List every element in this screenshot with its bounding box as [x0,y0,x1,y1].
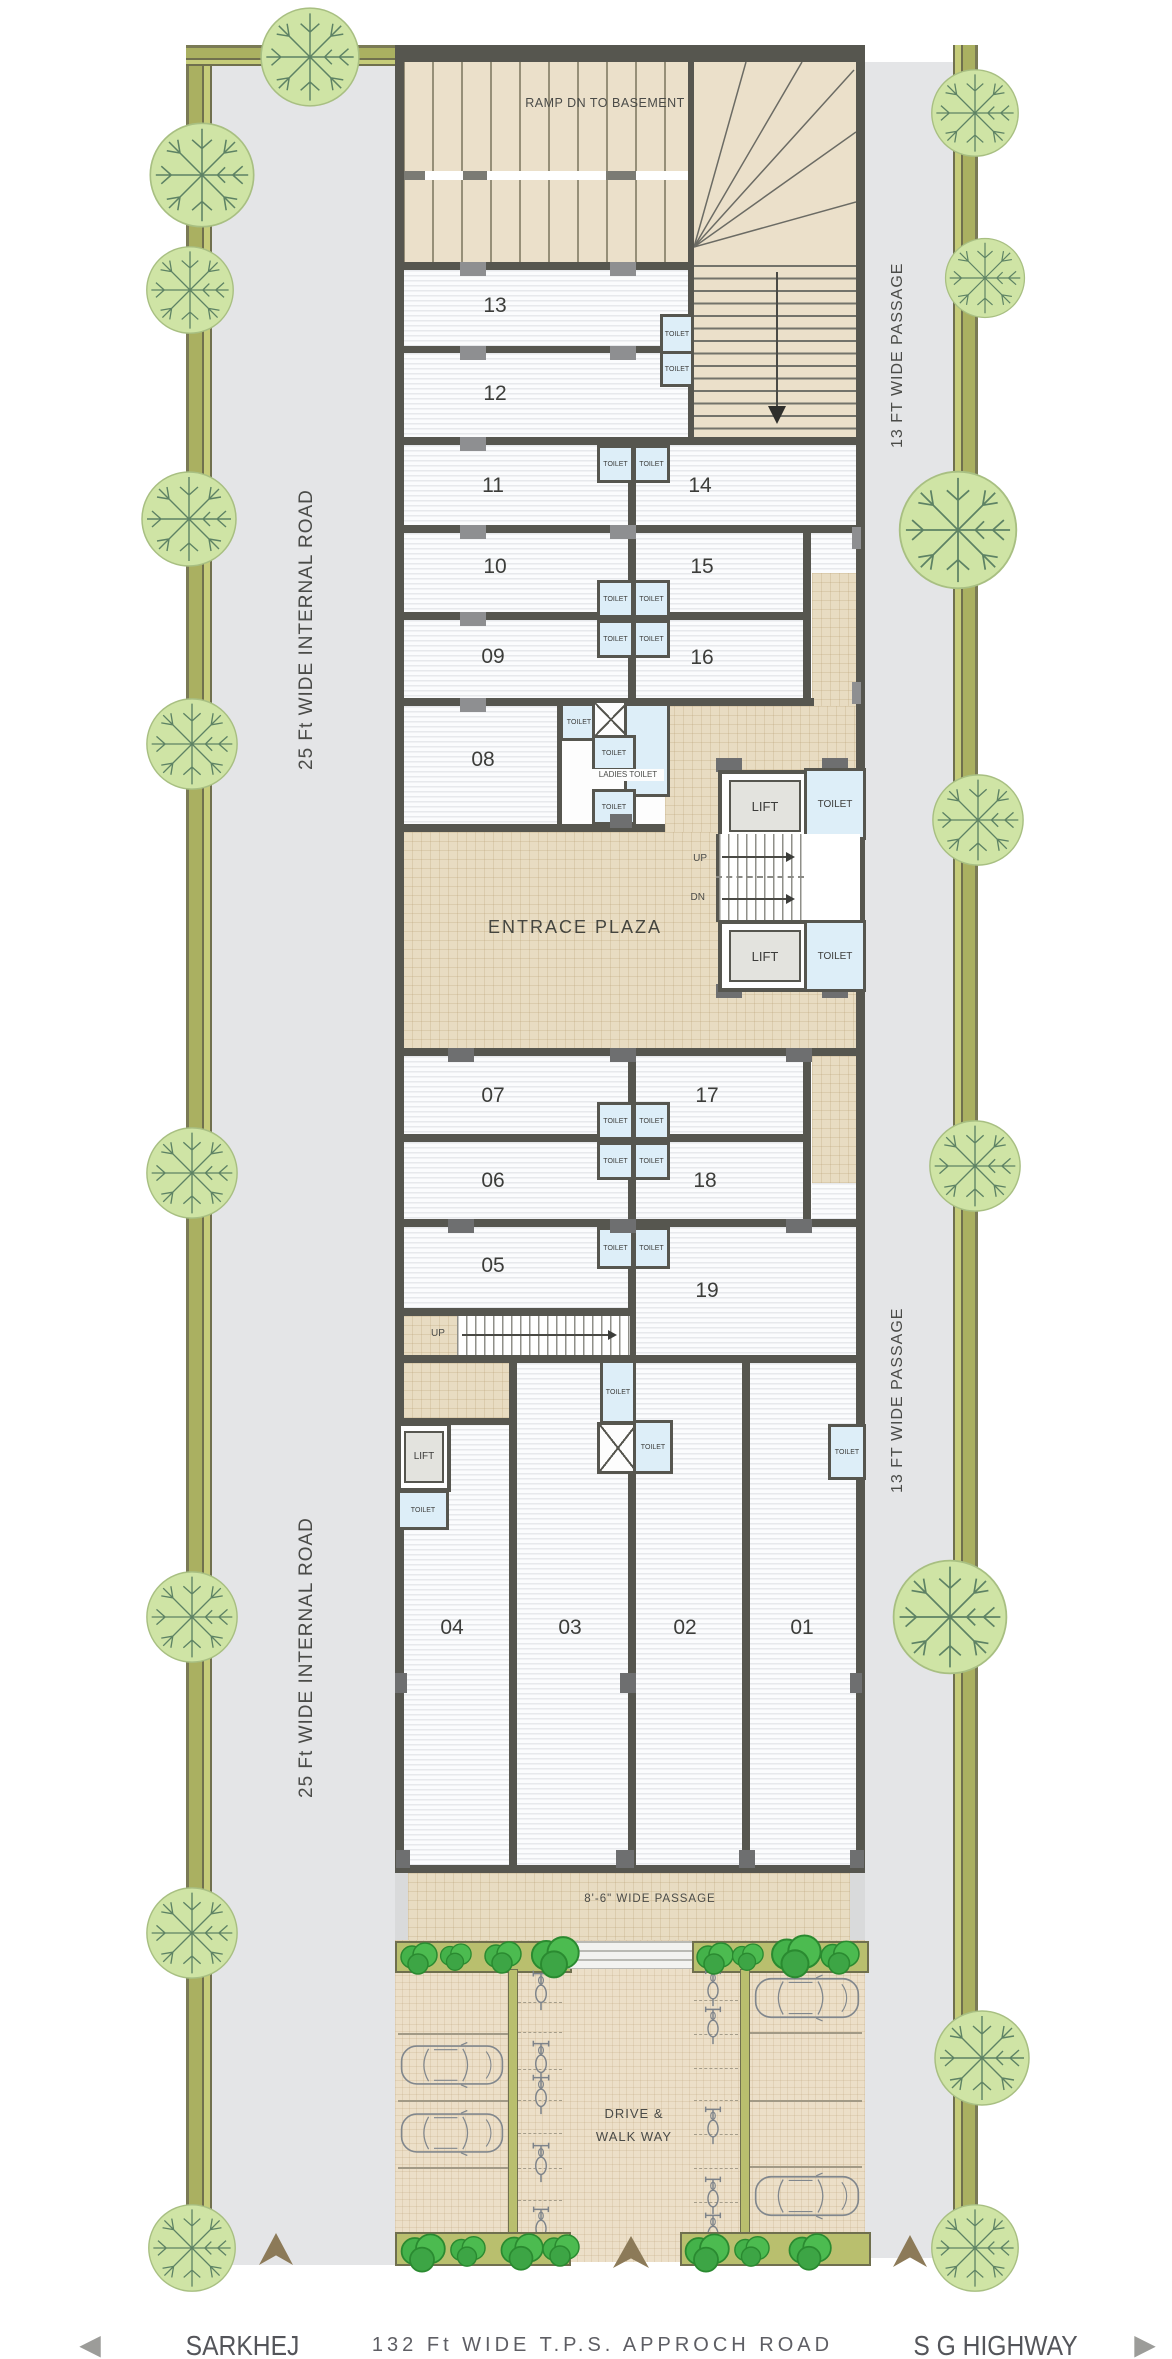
toilet-label: TOILET [603,1118,627,1125]
lift-car: LIFT [404,1431,444,1482]
tree-icon [144,1569,240,1665]
bush-icon [528,1928,580,1980]
column-pillar [786,1048,812,1062]
unit-label-18: 18 [670,1169,740,1195]
ramp-turn-lines [694,62,856,265]
toilet-label: TOILET [603,596,627,603]
internal-road-label-bottom: 25 Ft WIDE INTERNAL ROAD [296,1508,324,1808]
rear-up-label: UP [424,1328,452,1342]
rear-stair-arrow-icon [608,1330,617,1340]
toilet-room: TOILET [597,445,634,483]
rear-passage-strip-right [850,1873,865,1940]
toilet-label: TOILET [665,331,689,338]
column-pillar [850,1850,864,1868]
unit-label-07: 07 [458,1084,528,1110]
plaza-strip-right [812,573,857,706]
unit-label-13: 13 [460,294,530,320]
tree-icon [890,1557,1010,1677]
toilet-room: TOILET [633,620,670,658]
scooter-icon [528,2070,554,2116]
toilet-room: TOILET [804,920,866,992]
stall-divider [694,2100,738,2101]
up-label: UP [681,853,707,867]
stall-divider [750,2032,862,2034]
toilet-room: TOILET [597,1142,634,1180]
ramp-joint-block [463,171,487,180]
column-pillar [460,612,486,626]
wall [395,1308,636,1316]
toilet-label: TOILET [639,596,663,603]
stall-divider [694,2168,738,2169]
toilet-room: TOILET [804,768,866,840]
parking-green-divider [508,1969,518,2234]
column-pillar [610,525,636,539]
wall [395,45,865,62]
side-passage-label-bottom: 13 FT WIDE PASSAGE [889,1303,917,1498]
unit-label-10: 10 [460,555,530,581]
column-pillar [610,1219,636,1233]
bush-icon [730,1938,764,1972]
toilet-label: TOILET [639,1245,663,1252]
rear-passage-label: 8'-6" WIDE PASSAGE [540,1893,760,1911]
basement-ramp [403,62,688,262]
toilet-label: TOILET [567,719,591,726]
scooter-icon [700,2002,726,2046]
stall-divider [398,2100,508,2102]
tree-icon [146,2202,238,2294]
lift-shaft: LIFT [397,1422,451,1492]
toilet-label: TOILET [603,461,627,468]
ramp-joint-block [606,171,636,180]
stair-direction-line [776,272,778,408]
side-passage-label-top: 13 FT WIDE PASSAGE [889,258,917,453]
toilet-room: TOILET [660,314,694,354]
entrance-steps [568,1941,692,1969]
toilet-label: TOILET [603,1245,627,1252]
rear-stair-line [462,1334,610,1336]
tree-icon [144,244,236,336]
tree-icon [144,1885,240,1981]
bush-icon [498,2226,544,2272]
plaza-above-lift [403,1363,513,1418]
bush-icon [732,2230,770,2268]
tree-icon [943,236,1027,320]
toilet-room: TOILET [597,1102,634,1140]
ramp-joint-block [403,171,425,180]
internal-road-label-top: 25 Ft WIDE INTERNAL ROAD [296,480,324,780]
main-road-label: 132 Ft WIDE T.P.S. APPROCH ROAD [330,2334,875,2359]
tree-icon [896,468,1020,592]
column-pillar [610,1048,636,1062]
column-pillar [852,527,861,549]
stair-up-line [722,856,788,858]
destination-label-sarkhej: SARKHEJ [170,2330,315,2359]
wall [395,45,404,1872]
stair-break-line [716,876,804,878]
lift-car: LIFT [729,780,800,833]
dn-label: DN [679,892,705,906]
stair-up-arrow-icon [786,852,795,862]
stall-divider [518,2200,562,2201]
toilet-label: TOILET [411,1507,435,1514]
toilet-room: TOILET [633,1227,670,1269]
bush-icon [694,1936,734,1976]
lift-shaft: LIFT [718,920,812,992]
toilet-room: TOILET [600,1360,636,1424]
stall-divider [750,2166,862,2168]
shop-13 [403,270,688,346]
tree-icon [930,772,1026,868]
bush-icon [482,1935,522,1975]
column-pillar [448,1219,474,1233]
unit-label-03: 03 [535,1616,605,1642]
bush-icon [540,2228,580,2268]
lift-label: LIFT [414,1451,435,1462]
bush-icon [768,1926,822,1980]
toilet-label: TOILET [641,1444,665,1451]
column-pillar [616,1850,634,1868]
column-pillar [786,1219,812,1233]
lift-label: LIFT [752,949,779,964]
bush-icon [682,2226,730,2274]
lift-car: LIFT [729,930,800,983]
bush-icon [398,2226,446,2274]
lift-label: LIFT [752,799,779,814]
rear-passage-strip-left [395,1873,408,1940]
column-pillar [610,814,632,828]
unit-label-09: 09 [458,645,528,671]
bush-icon [398,1936,438,1976]
bush-icon [818,1934,860,1976]
tree-icon [147,120,257,230]
unit-label-16: 16 [667,646,737,672]
toilet-room: TOILET [633,1420,673,1474]
unit-label-12: 12 [460,382,530,408]
stall-divider [398,2167,508,2169]
unit-label-19: 19 [672,1279,742,1305]
stair-down-arrow-icon [768,406,786,424]
tree-icon [932,2008,1032,2108]
toilet-label: TOILET [639,636,663,643]
stair-dn-arrow-icon [786,894,795,904]
entrance-plaza-label: ENTRACE PLAZA [450,917,700,945]
unit-label-15: 15 [667,555,737,581]
ramp-joint-band [403,171,688,180]
toilet-label: TOILET [606,1389,630,1396]
unit-label-08: 08 [448,748,518,774]
unit-label-11: 11 [458,474,528,500]
corridor-next-to-15 [805,533,857,573]
stair-dn-line [722,898,788,900]
toilet-label: TOILET [639,461,663,468]
column-pillar [460,346,486,360]
column-pillar [395,1673,407,1693]
toilet-room: TOILET [633,580,670,618]
lift-shaft: LIFT [718,770,812,842]
parking-green-divider [740,1969,750,2234]
toilet-label: TOILET [818,799,853,810]
bush-icon [448,2230,486,2268]
tree-icon [929,67,1021,159]
toilet-label: TOILET [603,1158,627,1165]
wall [395,346,694,353]
destination-label-sg-highway: S G HIGHWAY [905,2330,1085,2359]
car-icon [398,2040,506,2090]
stall-divider [398,2033,508,2035]
column-pillar [460,262,486,276]
toilet-label: TOILET [639,1158,663,1165]
toilet-room: TOILET [660,351,694,387]
stair-landing [804,834,860,922]
unit-label-06: 06 [458,1169,528,1195]
column-pillar [448,1048,474,1062]
toilet-label: TOILET [603,636,627,643]
road-arrow-left-icon: ◀ [70,2328,110,2359]
column-pillar [852,682,861,704]
wall [509,1360,517,1872]
toilet-label: TOILET [818,951,853,962]
toilet-label: TOILET [639,1118,663,1125]
toilet-label: TOILET [602,804,626,811]
bush-icon [438,1938,472,1972]
wall [742,1360,750,1872]
toilet-room: TOILET [633,1142,670,1180]
stall-divider [518,2133,562,2134]
unit-label-17: 17 [672,1084,742,1110]
toilet-room: TOILET [592,735,636,771]
car-icon [752,2170,862,2222]
shop-12 [403,353,688,437]
tree-icon [258,5,362,109]
unit-label-14: 14 [665,474,735,500]
column-pillar [610,262,636,276]
unit-label-02: 02 [650,1616,720,1642]
toilet-label: TOILET [835,1449,859,1456]
ladies-toilet-label: LADIES TOILET [592,769,664,781]
column-pillar [460,437,486,451]
tree-icon [929,2202,1021,2294]
road-arrow-right-icon: ▶ [1125,2328,1165,2359]
toilet-room: TOILET [633,1102,670,1140]
scooter-icon [528,2138,554,2184]
core-staircase [716,834,807,922]
unit-label-04: 04 [417,1616,487,1642]
stall-divider [518,2032,562,2033]
column-pillar [610,346,636,360]
toilet-room: TOILET [397,1490,449,1530]
drive-walkway-line1: DRIVE & [578,2102,690,2125]
ramp-turn-area [694,62,856,265]
toilet-room: TOILET [597,1227,634,1269]
tree-icon [139,469,239,569]
tree-icon [927,1118,1023,1214]
column-pillar [620,1673,636,1693]
stall-divider [750,2100,862,2102]
column-pillar [850,1673,862,1693]
wall [395,262,694,270]
tree-icon [144,696,240,792]
toilet-label: TOILET [665,366,689,373]
car-icon [398,2108,506,2158]
stall-divider [694,2068,738,2069]
toilet-label: TOILET [602,750,626,757]
drive-walkway-label: DRIVE & WALK WAY [578,2102,690,2148]
toilet-room: TOILET [597,580,634,618]
unit-label-01: 01 [767,1616,837,1642]
unit-label-05: 05 [458,1254,528,1280]
column-pillar [739,1850,755,1868]
column-pillar [396,1850,410,1868]
drive-walkway-line2: WALK WAY [578,2125,690,2148]
scooter-icon [700,2102,726,2146]
tree-icon [144,1125,240,1221]
toilet-room: TOILET [597,620,634,658]
floor-plan: 25 Ft WIDE INTERNAL ROAD 25 Ft WIDE INTE… [0,0,1172,2359]
toilet-room: TOILET [828,1424,866,1480]
plaza-right-of-17 [812,1056,857,1183]
bush-icon [786,2226,832,2272]
column-pillar [460,525,486,539]
column-pillar [460,698,486,712]
